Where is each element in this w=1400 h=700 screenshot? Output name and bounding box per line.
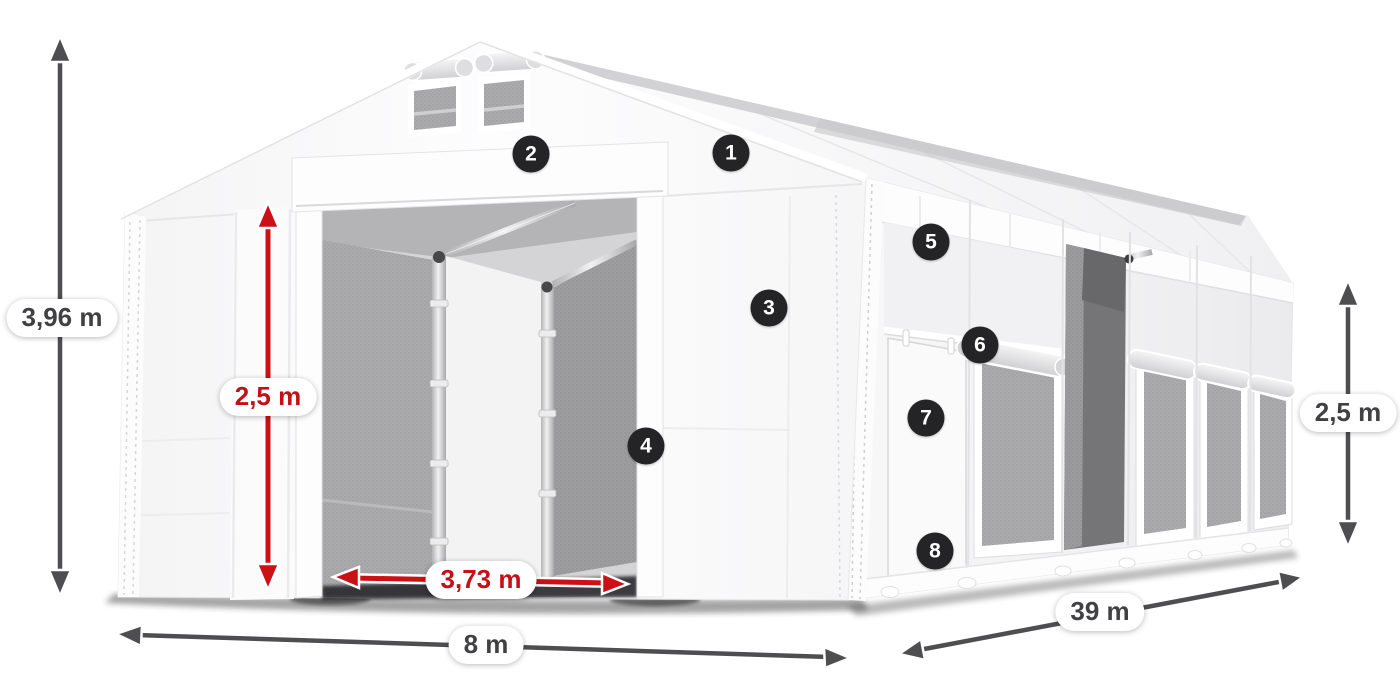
label-entrance-width: 3,73 m [426,561,537,599]
callout-5-side-panel: 5 [913,224,950,261]
interior-mesh-left [322,240,433,595]
tent-illustration [0,0,1400,700]
label-side-height: 2,5 m [1300,394,1397,432]
side-window-2 [1126,348,1198,548]
interior-mesh-right [553,240,637,576]
callout-3-front-wall: 3 [751,290,788,327]
interior-door-pole-2 [539,282,556,581]
front-entrance-opening [322,194,637,600]
side-window-3 [1192,362,1252,540]
label-front-width: 8 m [449,626,524,664]
callout-7-side-door: 7 [908,400,945,437]
label-total-height: 3,96 m [7,299,118,337]
side-window-4 [1247,374,1297,530]
callout-4-door-post: 4 [628,428,665,465]
tent-dimension-diagram: 3,96 m 2,5 m 3,73 m 8 m 39 m 2,5 m 1 2 3… [0,0,1400,700]
through-passage [446,256,541,592]
callout-6-side-window: 6 [962,327,999,364]
label-side-length: 39 m [1055,593,1144,631]
label-entrance-height: 2,5 m [220,378,317,416]
callout-2-gable-beam: 2 [513,136,550,173]
callout-1-roof: 1 [713,135,750,172]
callout-8-side-door-base: 8 [917,533,954,570]
interior-door-pole-1 [430,251,448,595]
